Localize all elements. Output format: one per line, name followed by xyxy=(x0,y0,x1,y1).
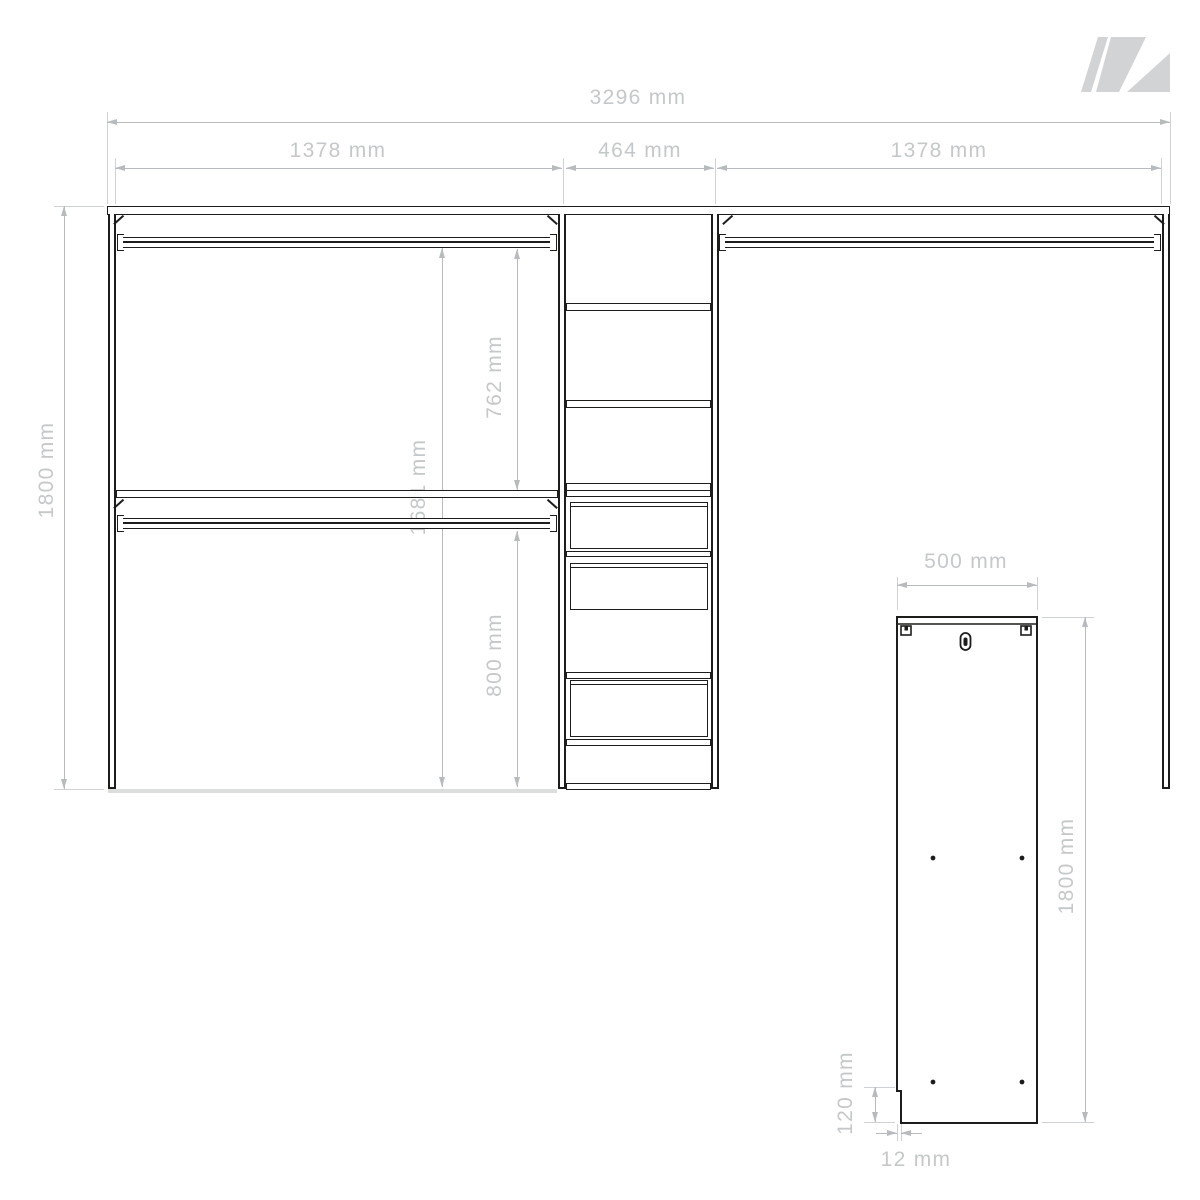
panel-dowel-hole xyxy=(931,1080,936,1085)
dim-line-right-width xyxy=(717,168,1161,169)
dim-line-left-width xyxy=(115,168,562,169)
dim-line-lower-compartment xyxy=(517,531,518,787)
tower-drawer-2 xyxy=(570,563,708,610)
dim-line-thickness-left-tail xyxy=(876,1133,897,1134)
tower-shelf-1 xyxy=(566,303,711,311)
brand-logo-icon xyxy=(1078,36,1170,93)
corner-brace xyxy=(547,215,558,225)
panel-outline xyxy=(897,617,1037,1123)
dim-line-center-width xyxy=(566,168,714,169)
rail-end-cap xyxy=(1154,234,1161,251)
tower-shelf-3b xyxy=(566,490,711,497)
panel-dowel-hole xyxy=(931,856,936,861)
corner-brace xyxy=(547,499,558,509)
rail-end-cap xyxy=(550,234,557,251)
cabinet-top-panel xyxy=(107,206,1170,215)
dim-line-upper-compartment xyxy=(517,249,518,490)
panel-dowel-hole xyxy=(1020,856,1025,861)
tower-shelf-6 xyxy=(566,739,711,746)
dim-label-thickness: 12 mm xyxy=(816,1148,1016,1172)
cabinet-right-wall xyxy=(1162,214,1170,789)
tower-right-wall xyxy=(711,214,719,789)
dim-label-lower-compartment: 800 mm xyxy=(483,585,507,725)
dim-label-panel-height: 1800 mm xyxy=(1055,796,1079,936)
tower-shelf-4 xyxy=(566,551,711,557)
dim-label-notch-height: 120 mm xyxy=(834,1023,858,1163)
extension-line xyxy=(54,789,104,790)
hanging-rail-left-top xyxy=(123,237,551,248)
extension-line xyxy=(107,112,108,204)
dim-label-upper-compartment: 762 mm xyxy=(483,307,507,447)
extension-line xyxy=(563,158,564,204)
dim-label-panel-width: 500 mm xyxy=(866,550,1066,574)
corner-brace xyxy=(722,215,733,225)
extension-line xyxy=(864,1087,895,1088)
dim-line-thickness-right-tail xyxy=(901,1133,922,1134)
hanging-rail-left-middle xyxy=(123,518,551,529)
rail-end-cap xyxy=(550,515,557,532)
keyhole-slot-inner xyxy=(964,638,968,647)
tower-left-wall xyxy=(558,214,566,789)
hanger-bracket-left-tab xyxy=(905,626,909,631)
extension-line xyxy=(864,1122,895,1123)
extension-line xyxy=(1161,158,1162,204)
cabinet-left-wall xyxy=(108,214,116,789)
dim-line-panel-height xyxy=(1085,617,1086,1122)
dim-label-center-width: 464 mm xyxy=(540,139,740,163)
extension-line xyxy=(715,158,716,204)
dim-line-notch-height xyxy=(875,1087,876,1122)
dim-label-total-width: 3296 mm xyxy=(538,86,738,110)
hanging-rail-right xyxy=(725,237,1155,248)
tower-shelf-5 xyxy=(566,672,711,679)
panel-dowel-hole xyxy=(1020,1080,1025,1085)
extension-line xyxy=(1037,577,1038,610)
detail-panel-drawing xyxy=(894,614,1044,1129)
left-section-mid-shelf xyxy=(116,490,558,498)
dim-line-total-height xyxy=(64,206,65,789)
extension-line xyxy=(1042,1122,1094,1123)
tower-drawer-3 xyxy=(570,680,708,737)
dim-label-total-height: 1800 mm xyxy=(35,400,59,540)
technical-drawing-canvas: 3296 mm 1378 mm 464 mm 1378 mm 1800 mm 1… xyxy=(0,0,1200,1200)
dim-line-panel-width xyxy=(897,585,1037,586)
dim-label-left-width: 1378 mm xyxy=(238,139,438,163)
floor-line xyxy=(108,789,557,793)
dim-line-total-width xyxy=(107,122,1170,123)
tower-bottom-panel xyxy=(566,783,711,790)
tower-drawer-1 xyxy=(570,502,708,549)
dim-label-interior-height: 1681 mm xyxy=(407,417,431,557)
tower-shelf-2 xyxy=(566,400,711,408)
dim-label-right-width: 1378 mm xyxy=(839,139,1039,163)
hanger-bracket-right-tab xyxy=(1025,626,1029,631)
extension-line xyxy=(1170,112,1171,204)
